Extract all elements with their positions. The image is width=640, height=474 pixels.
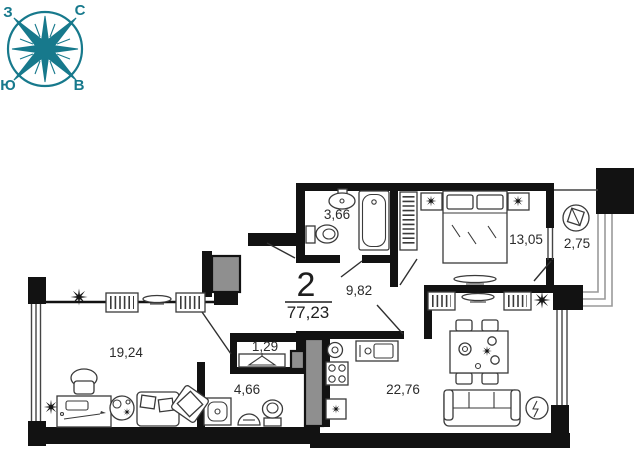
sink-icon bbox=[238, 414, 260, 425]
wall-kitchen-top bbox=[296, 331, 404, 339]
plant-icon bbox=[44, 400, 58, 414]
wall-entrance-porch bbox=[248, 233, 305, 246]
toilet-icon bbox=[263, 400, 283, 426]
desk-icon bbox=[57, 396, 111, 427]
wall-exterior-pier bbox=[596, 168, 634, 214]
window-kitchen bbox=[557, 310, 567, 405]
balcony-chair-icon bbox=[563, 205, 589, 231]
sofa-icon bbox=[444, 390, 520, 426]
plant-icon bbox=[513, 196, 524, 207]
floor-plan-page: З С Ю В bbox=[0, 0, 640, 474]
bathroom-area-label: 3,66 bbox=[324, 207, 350, 222]
wall-right-window-top-pier bbox=[553, 290, 583, 310]
hallway-area-label: 9,82 bbox=[346, 283, 372, 298]
balcony-area-label: 2,75 bbox=[564, 236, 590, 251]
side-table-icon bbox=[526, 397, 548, 419]
round-table-icon bbox=[110, 396, 134, 420]
ventilation-shaft bbox=[305, 339, 323, 426]
wall-hall-top-right bbox=[362, 255, 390, 263]
bedroom-area-label: 13,05 bbox=[509, 232, 543, 247]
wardrobe-icon bbox=[176, 293, 205, 312]
office-chair-icon bbox=[71, 369, 97, 394]
ceiling-light-icon bbox=[533, 291, 550, 308]
wall-entrance-left bbox=[202, 251, 212, 297]
living-room-area-label: 19,24 bbox=[109, 345, 143, 360]
bed-icon bbox=[443, 191, 507, 263]
small-shaft bbox=[291, 351, 304, 369]
wardrobe-icon bbox=[106, 293, 138, 312]
bathroom2-area-label: 4,66 bbox=[234, 382, 260, 397]
dining-table-icon bbox=[450, 320, 508, 384]
kitchen-area-label: 22,76 bbox=[386, 382, 420, 397]
wardrobe-icon bbox=[504, 292, 531, 310]
closet-area-label: 1,29 bbox=[252, 339, 278, 354]
apartment-total-area: 77,23 bbox=[287, 303, 330, 322]
wall-bottom-left bbox=[28, 427, 320, 444]
window-living-room bbox=[32, 304, 41, 421]
compass-east-label: В bbox=[74, 77, 85, 94]
toilet-icon bbox=[306, 225, 338, 243]
apartment-number: 2 bbox=[297, 266, 316, 304]
wall-hall-top-left bbox=[296, 255, 340, 263]
bathtub-icon bbox=[359, 191, 389, 250]
living-room-door bbox=[202, 312, 231, 354]
wall-right-window-bottom-pier bbox=[551, 405, 569, 433]
entrance-shaft bbox=[212, 256, 240, 292]
ceiling-light-icon bbox=[70, 288, 87, 305]
apartment-summary: 2 77,23 bbox=[285, 266, 332, 322]
tv-icon bbox=[454, 276, 496, 285]
plant-icon bbox=[426, 196, 437, 207]
fridge-icon bbox=[326, 399, 346, 419]
wall-left-window-top-pier bbox=[28, 277, 46, 304]
wall-bedroom-right-upper bbox=[546, 183, 554, 228]
bedroom-door bbox=[400, 259, 417, 285]
compass-rose: З С Ю В bbox=[0, 0, 107, 111]
wall-bathroom-left bbox=[296, 183, 305, 263]
compass-south-label: Ю bbox=[0, 77, 15, 94]
bathroom2-fixtures bbox=[204, 398, 283, 426]
wardrobe-icon bbox=[400, 192, 417, 250]
wardrobe-icon bbox=[428, 292, 455, 310]
kitchen-sink-icon bbox=[356, 341, 398, 361]
washing-machine-icon bbox=[328, 343, 343, 358]
kitchen-furniture bbox=[326, 291, 551, 426]
floor-plan-drawing: З С Ю В bbox=[0, 0, 640, 474]
bathroom-door bbox=[341, 261, 362, 277]
compass-north-label: С bbox=[75, 2, 86, 19]
wall-bathroom-bedroom-divider bbox=[390, 191, 398, 287]
kitchen-door bbox=[377, 305, 403, 334]
wall-bottom-right bbox=[310, 433, 570, 448]
stove-icon bbox=[326, 362, 348, 385]
wall-top bbox=[296, 183, 554, 191]
balcony-door bbox=[548, 228, 553, 260]
closet-furniture bbox=[239, 353, 285, 367]
sink-icon bbox=[329, 189, 355, 209]
compass-west-label: З bbox=[3, 4, 12, 21]
tv-icon bbox=[462, 294, 494, 303]
